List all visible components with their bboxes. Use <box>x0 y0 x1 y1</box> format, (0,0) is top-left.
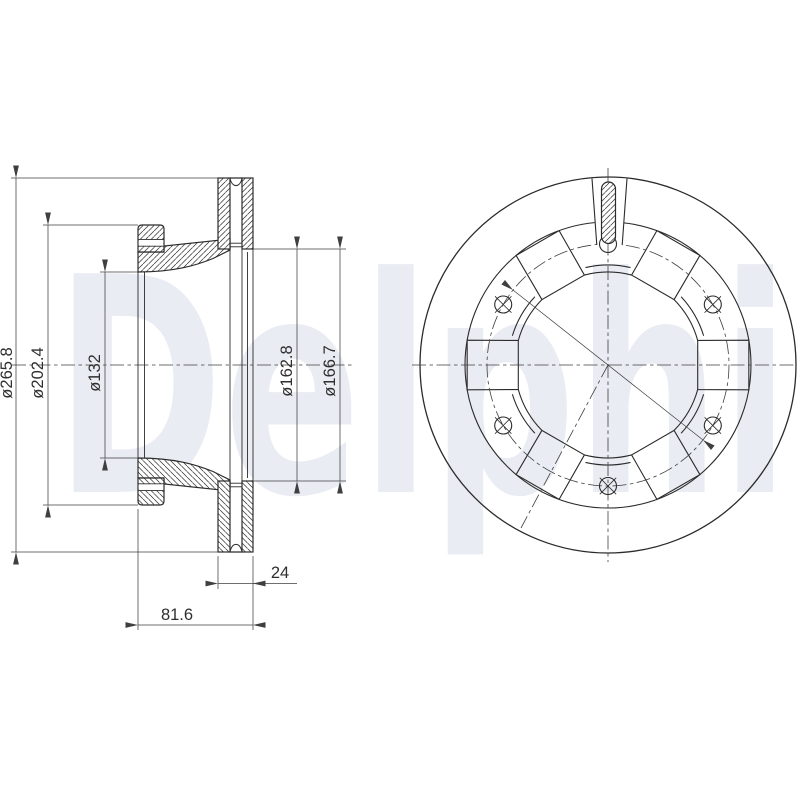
right-plate-section <box>242 178 253 249</box>
dim-label-flange-diameter: ø202.4 <box>29 347 47 398</box>
flange-bolt-hole <box>139 240 164 246</box>
dim-label-total-height: 81.6 <box>161 606 193 624</box>
dim-label-bore-diameter: ø132 <box>86 354 104 392</box>
dim-label-outer-diameter: ø265.8 <box>0 347 16 398</box>
brake-disc-technical-drawing: Delphi <box>0 0 800 800</box>
vent-gap-cup <box>230 179 242 186</box>
left-plate-section <box>218 178 230 249</box>
dim-label-friction-inner-diameter-1: ø162.8 <box>278 345 296 396</box>
hub-flange-section <box>138 225 164 252</box>
dim-label-friction-inner-diameter-2: ø166.7 <box>321 345 339 396</box>
keyway-slot <box>602 182 616 244</box>
dim-label-disc-thickness: 24 <box>271 564 289 582</box>
brake-disc-technical-drawing-page: Delphi <box>0 0 800 800</box>
